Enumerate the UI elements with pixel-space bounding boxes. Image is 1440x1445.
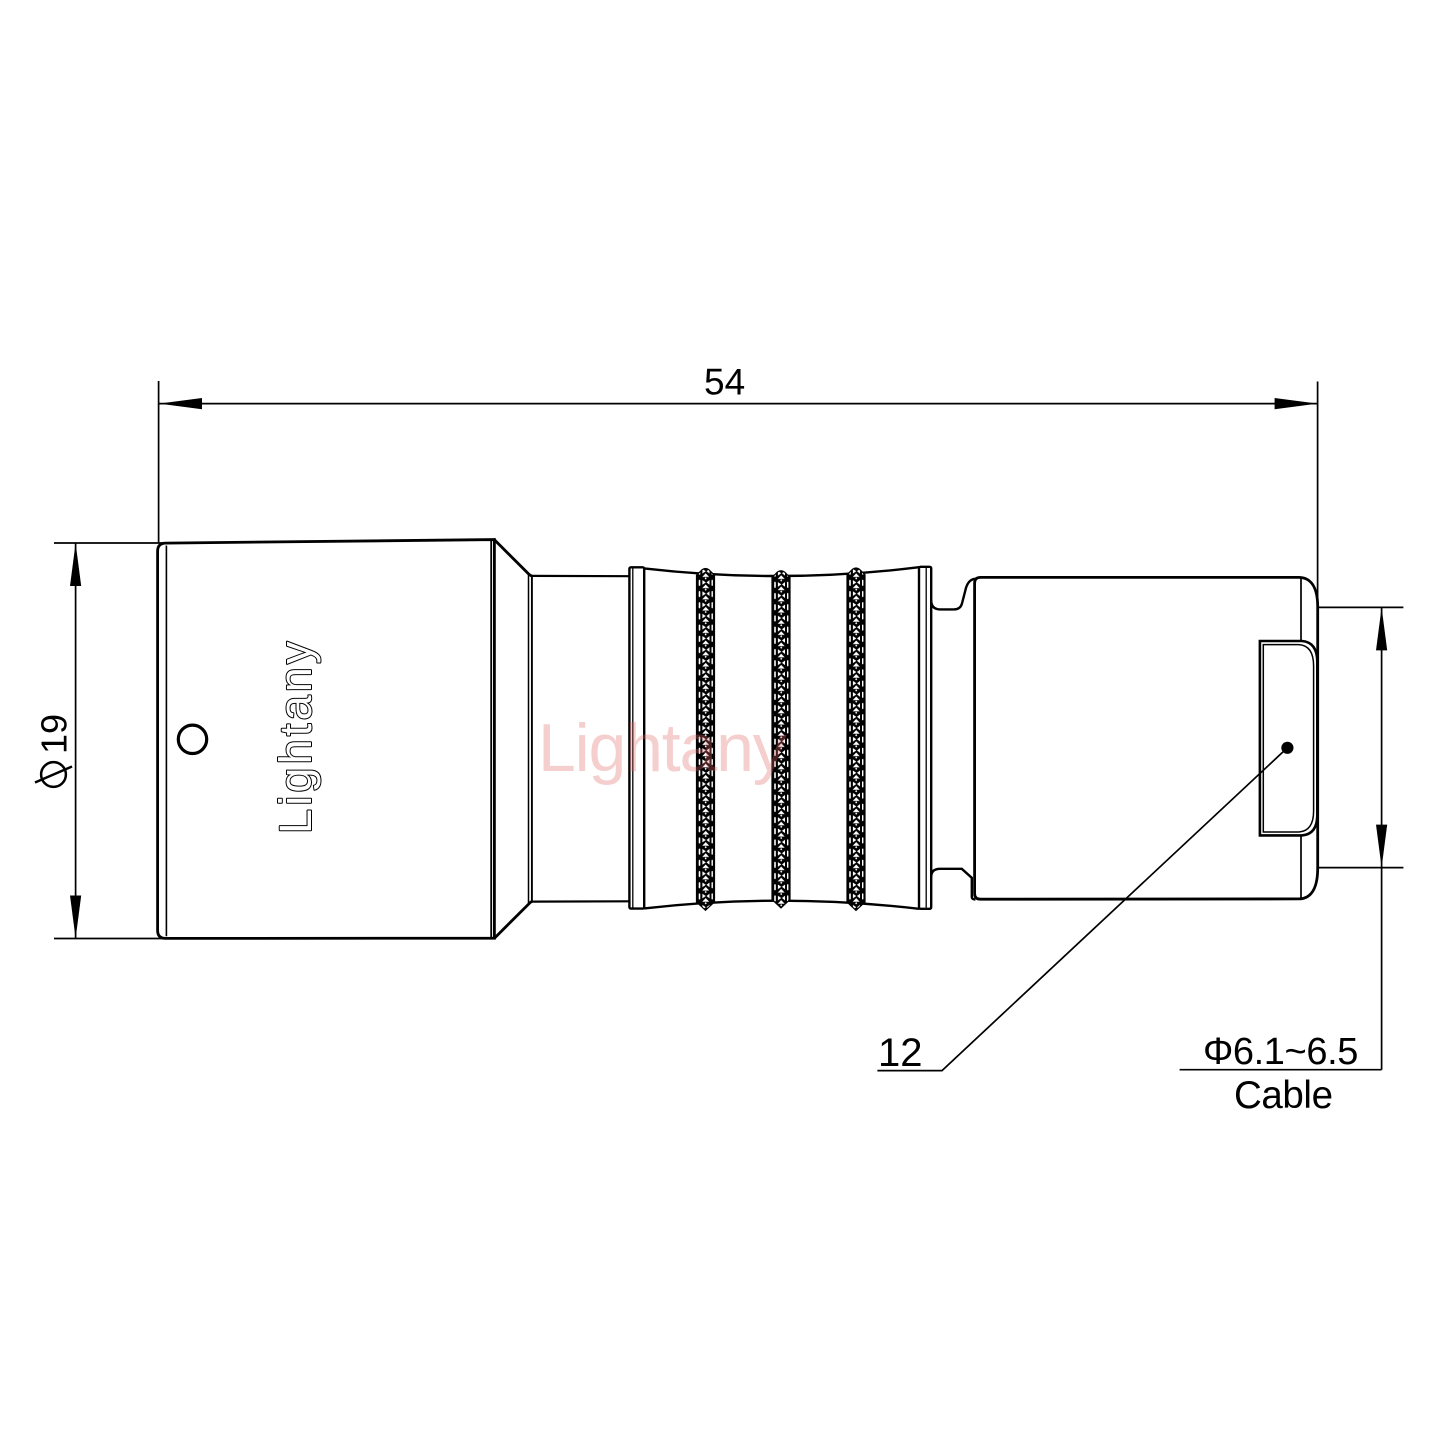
svg-text:Lightany: Lightany [538,710,787,786]
svg-text:54: 54 [704,362,745,403]
svg-text:Cable: Cable [1234,1074,1333,1117]
svg-text:Lightany: Lightany [270,638,321,834]
svg-text:Φ6.1~6.5: Φ6.1~6.5 [1203,1031,1358,1073]
svg-text:19: 19 [34,714,75,754]
svg-text:12: 12 [878,1031,923,1075]
